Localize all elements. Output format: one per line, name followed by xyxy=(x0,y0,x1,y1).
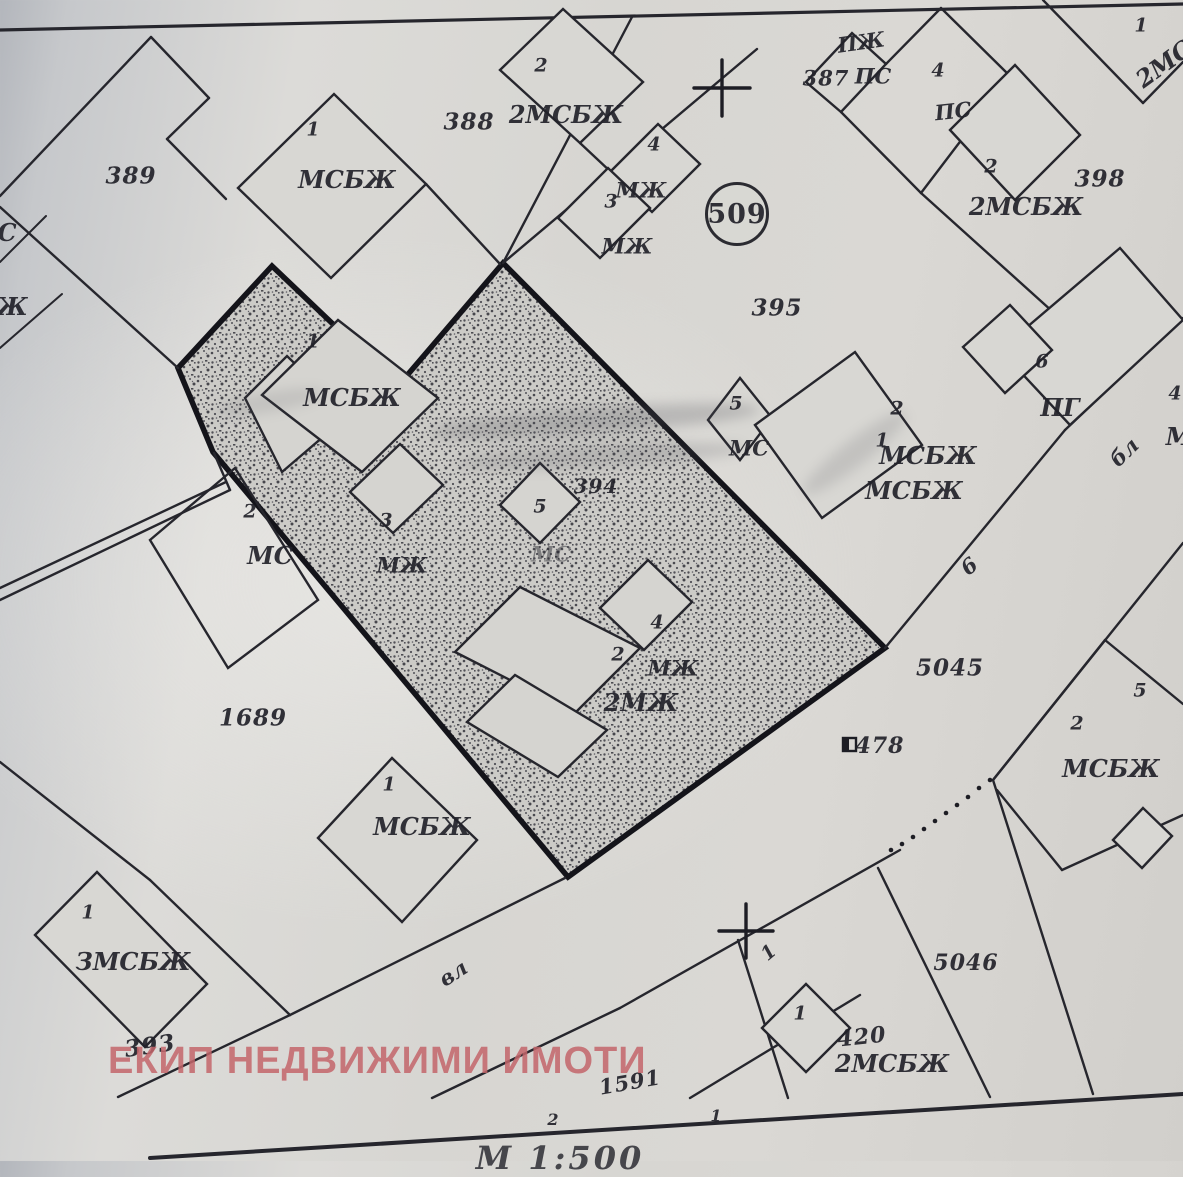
map-label-type: МЖ xyxy=(377,555,428,576)
map-label-num: 1 xyxy=(382,776,395,795)
map-label-type: 2МСБЖ xyxy=(969,195,1083,219)
map-label-type: МЖ xyxy=(648,658,699,679)
map-line-art xyxy=(0,0,1183,1161)
map-label-type: МСБЖ xyxy=(303,386,401,410)
map-label-type: 2МЖ xyxy=(604,691,679,715)
map-label-num: 4 xyxy=(647,136,660,155)
map-label-parcel: 1689 xyxy=(219,707,287,730)
map-label-parcel: 388 xyxy=(443,111,494,134)
map-label-num: 5 xyxy=(729,395,742,414)
map-label-type: МЖ xyxy=(616,180,667,201)
cadastral-map-sheet: 3893883873983953941689393504550464201591… xyxy=(0,0,1183,1161)
map-label-type: ЗМСБЖ xyxy=(76,950,191,974)
geodetic-point-icon xyxy=(843,738,856,751)
map-label-num: 2 xyxy=(890,400,903,419)
map-label-num: 5 xyxy=(1133,682,1146,701)
map-label-parcel: 5046 xyxy=(933,952,998,974)
map-label-num: 5 xyxy=(533,498,546,517)
map-label-num: 3 xyxy=(604,193,617,212)
map-label-num: 3 xyxy=(379,512,392,531)
map-label-parcel: 478 xyxy=(856,735,905,757)
map-label-num: 2 xyxy=(1070,715,1083,734)
map-label-type: МСБЖ xyxy=(879,444,977,468)
map-label-num: 2 xyxy=(534,57,547,76)
map-label-num: 2 xyxy=(984,158,997,177)
map-label-type: С xyxy=(0,221,17,245)
map-label-num: 2 xyxy=(547,1112,558,1128)
map-label-num: 1 xyxy=(1134,17,1147,36)
map-label-type: МСБЖ xyxy=(298,168,396,192)
map-label-num: 4 xyxy=(650,614,663,633)
subject-plot-hatched xyxy=(178,263,885,877)
map-label-parcel: 420 xyxy=(837,1024,888,1051)
map-label-type: ПГ xyxy=(1040,396,1079,420)
map-label-scale: М 1:500 xyxy=(476,1142,644,1174)
map-label-num: 4 xyxy=(931,62,944,81)
map-label-type: МСБЖ xyxy=(1062,757,1160,781)
map-label-circle: 509 xyxy=(705,182,769,246)
map-label-type: М xyxy=(1166,425,1183,449)
map-label-num: 2 xyxy=(243,503,256,522)
map-label-type: МСБЖ xyxy=(865,479,963,503)
map-label-parcel: 5045 xyxy=(916,657,984,680)
map-label-parcel: 387 xyxy=(803,68,850,89)
map-label-num: 4 xyxy=(1168,385,1181,404)
map-label-parcel: 394 xyxy=(574,476,619,496)
map-label-num: 1 xyxy=(306,121,319,140)
map-label-type: 2МСБЖ xyxy=(509,103,623,127)
map-label-type: ПС xyxy=(855,66,892,87)
map-label-parcel: 389 xyxy=(105,165,156,188)
map-label-type: ПС xyxy=(934,99,973,124)
map-label-num: 1 xyxy=(875,432,888,451)
watermark-text: ЕКИП НЕДВИЖИМИ ИМОТИ xyxy=(108,1040,647,1083)
map-label-type: МСБЖ xyxy=(373,815,471,839)
map-label-type: Ж xyxy=(0,295,28,319)
map-label-parcel: 398 xyxy=(1074,168,1125,191)
map-label-num: 1 xyxy=(306,333,319,352)
map-label-parcel: 395 xyxy=(751,297,802,320)
map-label-num: 1 xyxy=(81,904,94,923)
street-dotted-line xyxy=(889,778,993,853)
map-label-num: 1 xyxy=(793,1005,806,1024)
map-label-num: 6 xyxy=(1035,353,1048,372)
map-label-type: МЖ xyxy=(602,236,653,257)
map-label-type: МС xyxy=(531,544,571,565)
map-label-num: 1 xyxy=(710,1108,721,1124)
map-label-type: МС xyxy=(729,438,769,459)
map-label-num: 2 xyxy=(611,646,624,665)
map-label-type: МС xyxy=(247,544,293,568)
map-label-type: 2МСБЖ xyxy=(835,1052,949,1076)
map-label-type: ПЖ xyxy=(836,28,886,55)
